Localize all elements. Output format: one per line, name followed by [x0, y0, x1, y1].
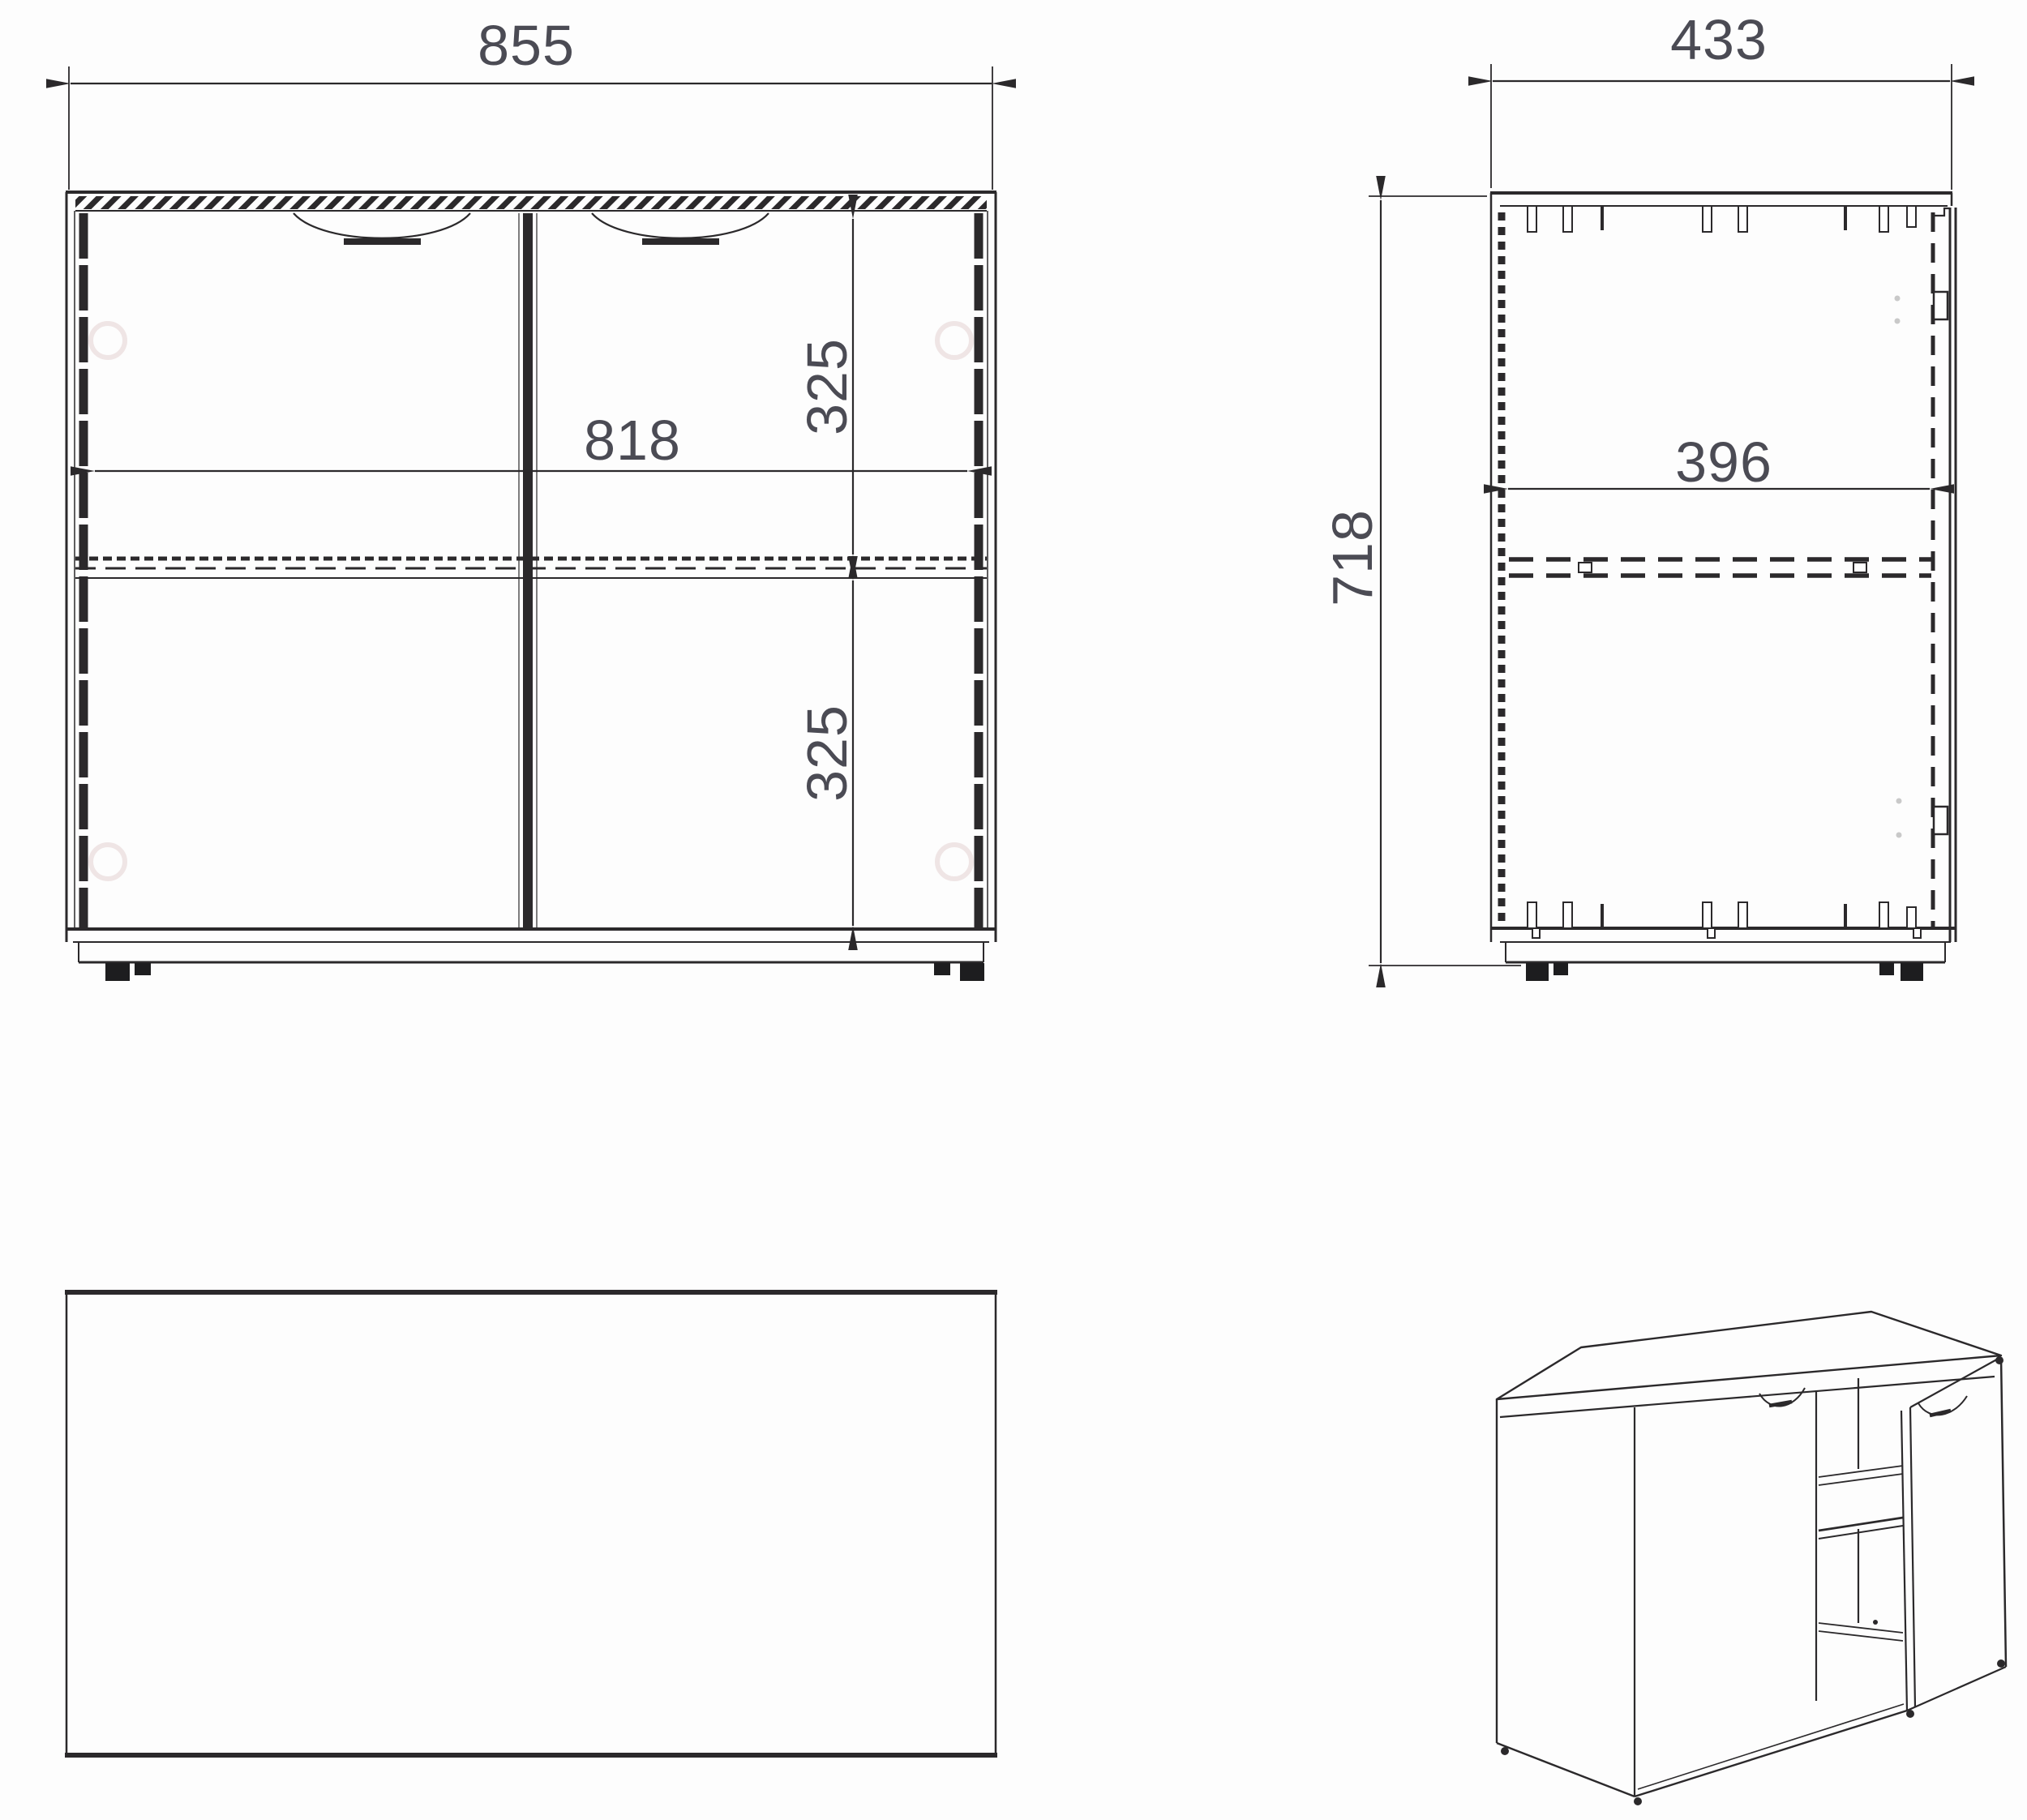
- top-panel-hatch: [75, 196, 987, 209]
- right-door-handle: [592, 213, 769, 238]
- dim-front-width: 855: [69, 14, 992, 190]
- side-shelf-hidden-lines: [1509, 559, 1931, 576]
- side-view: 433 718 396: [1321, 8, 1956, 981]
- top-view: [65, 1292, 997, 1755]
- dim-front-width-label: 855: [478, 14, 575, 77]
- side-top-dowel-tabs: [1528, 206, 1916, 232]
- dim-side-inner-depth-label: 396: [1675, 430, 1772, 494]
- iso-open-compartment: [1816, 1378, 1903, 1701]
- left-door-handle: [294, 213, 470, 238]
- drawing-canvas: 855 818 325 325: [0, 0, 2027, 1820]
- side-bottom-dowel-tabs: [1528, 902, 1921, 938]
- dim-lower-section-label: 325: [795, 704, 859, 802]
- dim-upper-section-label: 325: [795, 338, 859, 435]
- iso-shelf-front-edge: [1819, 1518, 1903, 1531]
- front-doors: [84, 213, 979, 927]
- iso-view: [1497, 1312, 2006, 1805]
- iso-carcass: [1497, 1312, 2001, 1796]
- dim-side-inner-depth: 396: [1508, 430, 1930, 494]
- iso-feet: [1501, 1710, 1914, 1805]
- side-feet: [1526, 963, 1923, 981]
- dim-side-height-label: 718: [1321, 509, 1384, 606]
- dim-side-depth-label: 433: [1670, 8, 1768, 71]
- shelf-clip-right: [1853, 563, 1866, 572]
- shelf-pin-dot: [1873, 1620, 1878, 1625]
- front-view: 855 818 325 325: [66, 14, 996, 981]
- upper-hinge: [1934, 292, 1948, 319]
- shelf-clip-left: [1579, 563, 1592, 572]
- iso-closed-door-handle: [1759, 1388, 1805, 1407]
- dim-side-depth: 433: [1491, 8, 1952, 190]
- lower-hinge: [1934, 807, 1948, 834]
- iso-open-door: [1901, 1356, 2006, 1711]
- dim-lower-section: 325: [795, 580, 859, 926]
- dim-front-inner-width-label: 818: [584, 409, 681, 472]
- front-feet: [105, 963, 984, 981]
- technical-drawing: 855 818 325 325: [0, 0, 2027, 1820]
- dim-upper-section: 325: [795, 219, 859, 555]
